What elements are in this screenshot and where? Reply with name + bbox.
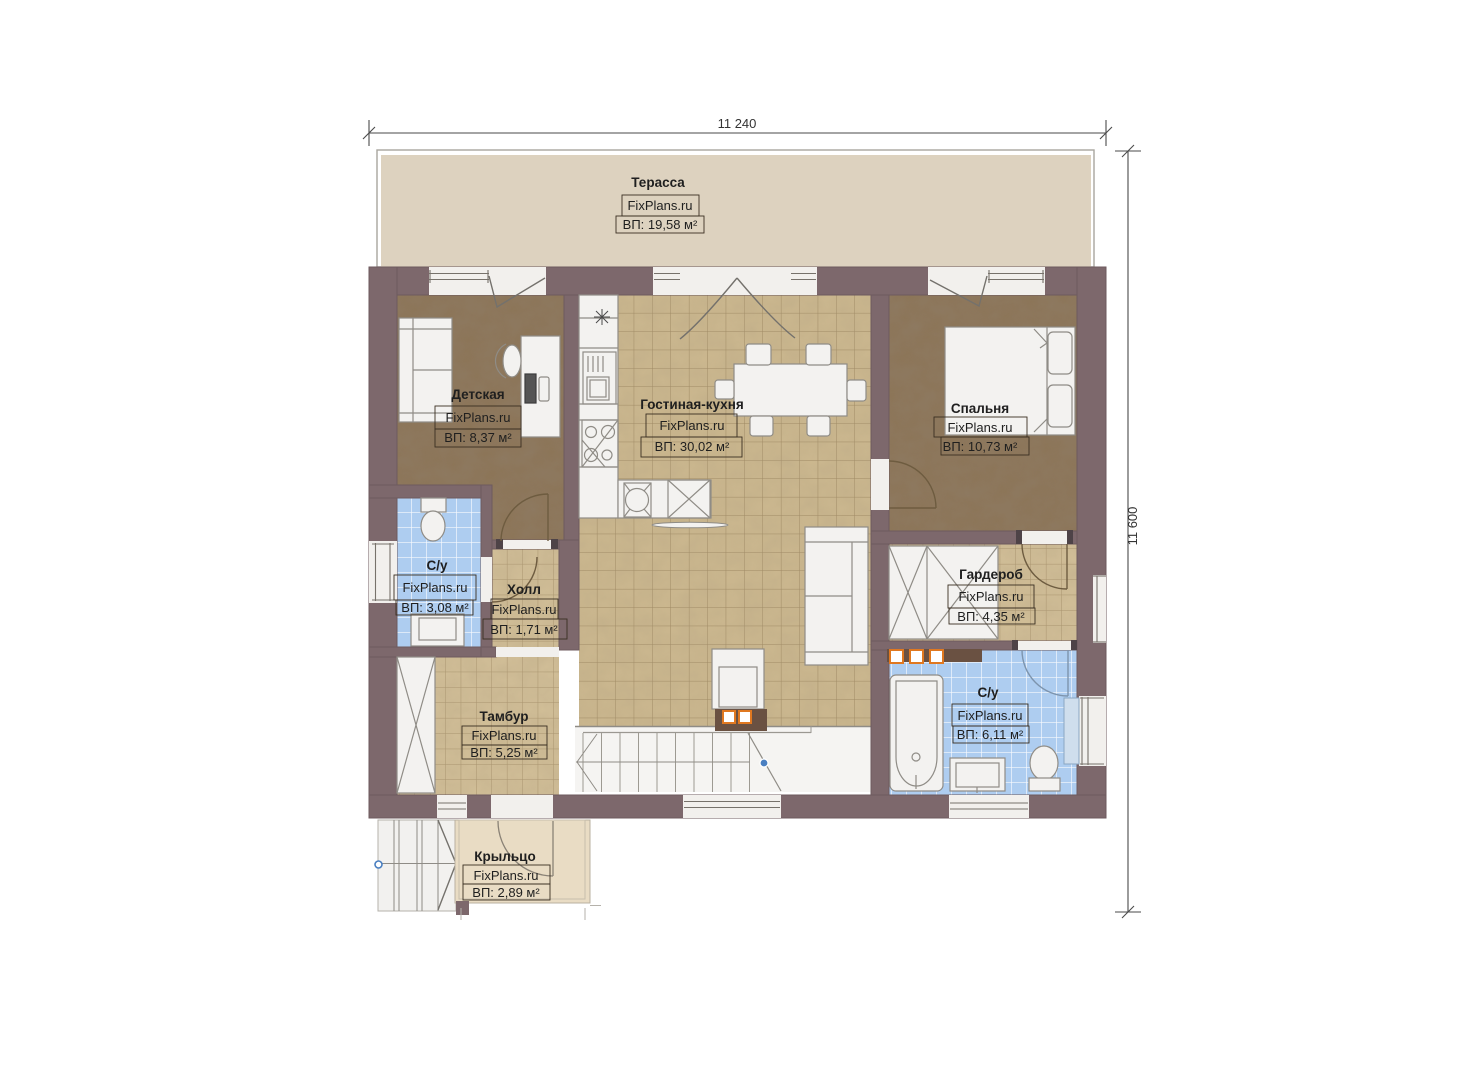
svg-text:ВП: 2,89 м²: ВП: 2,89 м² (472, 885, 540, 900)
svg-text:FixPlans.ru: FixPlans.ru (473, 868, 538, 883)
svg-text:ВП: 4,35 м²: ВП: 4,35 м² (957, 609, 1025, 624)
svg-text:ВП: 19,58 м²: ВП: 19,58 м² (623, 217, 698, 232)
svg-text:ВП: 6,11 м²: ВП: 6,11 м² (957, 727, 1024, 742)
svg-text:Гостиная-кухня: Гостиная-кухня (640, 397, 743, 412)
svg-text:С/у: С/у (426, 558, 448, 573)
svg-text:Гардероб: Гардероб (959, 567, 1023, 582)
svg-text:ВП: 30,02 м²: ВП: 30,02 м² (655, 439, 730, 454)
svg-text:FixPlans.ru: FixPlans.ru (402, 580, 467, 595)
svg-text:FixPlans.ru: FixPlans.ru (958, 589, 1023, 604)
svg-text:FixPlans.ru: FixPlans.ru (491, 602, 556, 617)
svg-text:Детская: Детская (451, 387, 504, 402)
svg-text:Спальня: Спальня (951, 401, 1009, 416)
svg-text:ВП: 10,73 м²: ВП: 10,73 м² (943, 439, 1018, 454)
svg-text:FixPlans.ru: FixPlans.ru (659, 418, 724, 433)
svg-text:Крыльцо: Крыльцо (474, 849, 535, 864)
svg-text:FixPlans.ru: FixPlans.ru (471, 728, 536, 743)
svg-text:11 600: 11 600 (1125, 507, 1140, 546)
svg-text:FixPlans.ru: FixPlans.ru (445, 410, 510, 425)
svg-text:FixPlans.ru: FixPlans.ru (627, 198, 692, 213)
svg-text:Тамбур: Тамбур (480, 709, 529, 724)
svg-text:FixPlans.ru: FixPlans.ru (957, 708, 1022, 723)
svg-text:ВП: 8,37 м²: ВП: 8,37 м² (444, 430, 512, 445)
svg-text:ВП: 3,08 м²: ВП: 3,08 м² (401, 600, 469, 615)
svg-text:ВП: 1,71 м²: ВП: 1,71 м² (490, 622, 558, 637)
svg-text:FixPlans.ru: FixPlans.ru (947, 420, 1012, 435)
svg-text:С/у: С/у (977, 685, 999, 700)
svg-text:ВП: 5,25 м²: ВП: 5,25 м² (470, 745, 538, 760)
svg-text:Холл: Холл (507, 582, 541, 597)
svg-text:11 240: 11 240 (718, 116, 757, 131)
svg-text:Терасса: Терасса (631, 175, 685, 190)
